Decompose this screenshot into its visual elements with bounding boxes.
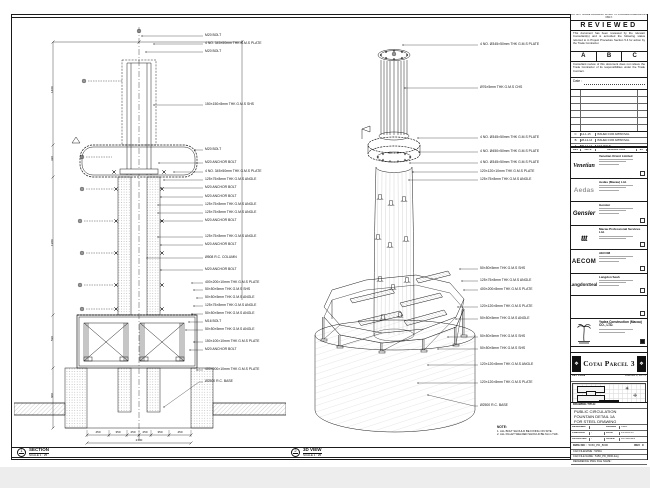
callout-label: M20 ANCHOR BOLT: [205, 243, 237, 246]
dimension-vertical: 320: [51, 156, 54, 161]
revision-header-cell: BY: [637, 149, 647, 152]
key-plan-star-2: ✛: [633, 393, 637, 399]
note-line: 2. ALL FILLET WELDED SHOULD BE 6mm THK.: [497, 433, 569, 436]
consultant-logo: Gensler: [571, 202, 597, 225]
callout-label: 50×50×5mm THK G.M.S ANGLE: [205, 296, 255, 299]
callout-label: 4 NO. 345×50mm THK G.M.S PLATE: [205, 42, 262, 45]
revision-header-cell: DATE: [581, 149, 596, 152]
note-lines: 1. ALL BOLT SHOULD BE FIXING ON SITE.2. …: [497, 430, 569, 437]
section-scale: SCALE 1 : 25: [29, 454, 49, 458]
title-block-panel: DO NOT SCALE DRAWING. WORK TO FIGURED DI…: [570, 14, 648, 459]
callout-label: 125×75×8mm THK G.M.S ANGLE: [480, 178, 531, 181]
stamp-date-row: Date :: [571, 77, 647, 86]
address-placeholder: [599, 238, 626, 239]
iso-marker: 2: [291, 448, 300, 457]
section-title-block: SECTION SCALE 1 : 25: [29, 448, 49, 458]
callout-label: 50×50×5mm THK G.M.S SHS: [480, 347, 525, 350]
cad-file-rows: CAD FILENAME : 5150ACAD FILE NAME : 5150…: [571, 450, 647, 465]
callout-label: 400×200×8mm THK G.M.S PLATE: [480, 288, 532, 291]
consultant-row: AECOMAECOM: [571, 250, 647, 274]
iso-title-block: 3D VIEW SCALE 1 : 25: [303, 448, 322, 458]
contractor-checkbox: [640, 339, 646, 345]
callout-label: 150×150×8mm THK G.M.S SHS: [205, 103, 254, 106]
key-plan-parcel: PARCEL 3, LOT 2: [625, 375, 646, 381]
dimension-value: 250: [142, 431, 147, 434]
revision-entries: C14-1-15ISSUED FOR APPROVALB28-12-14ISSU…: [571, 132, 647, 147]
callout-label: 125×75×8mm THK G.M.S ANGLE: [205, 203, 256, 206]
consultant-checkbox: [640, 171, 646, 177]
revision-empty-row: [571, 125, 647, 132]
callout-label: M20 ANCHOR BOLT: [205, 186, 237, 189]
consultant-logo: Aedas: [571, 179, 597, 201]
grade-cell: C: [622, 52, 647, 61]
consultant-logo: ttt: [571, 226, 597, 249]
footer-separator: [11, 447, 571, 448]
dimension-value: 250: [130, 431, 135, 434]
consultant-logo: LangdonSeah: [571, 274, 597, 295]
consultant-name: Venetian Orient Limited: [599, 155, 645, 159]
callout-label: Ø508 R.C. COLUMN: [205, 256, 237, 259]
consultant-row: tttMacau Professional Services Ltd.: [571, 226, 647, 250]
drawing-sheet: { "left_view": { "marker_no": "1", "titl…: [0, 0, 650, 488]
dimension-value: 450: [177, 431, 182, 434]
project-title-banner: ❖ Cotai Parcel 3 ❖: [571, 353, 647, 375]
consultant-checkbox: [640, 288, 646, 294]
callout-label: 125×75×8mm THK G.M.S ANGLE: [480, 279, 531, 282]
consultant-checkbox: [640, 242, 646, 248]
contractor-row: Yadea Construction (Macau) CO., LTD.: [571, 319, 647, 347]
consultant-row: [571, 296, 647, 319]
frame-top-outer: [11, 14, 648, 15]
consultant-logo: Venetian: [571, 153, 597, 178]
signature-cell: APPROVED: [571, 438, 590, 441]
stamp-paragraph-1: This document has been reviewed by the r…: [571, 31, 647, 51]
revision-empty-rows: [571, 90, 647, 132]
callout-label: 120×120×10mm THK G.M.S PLATE: [480, 170, 534, 173]
callout-label: M20 ANCHOR BOLT: [205, 219, 237, 222]
address-placeholder: [599, 258, 626, 259]
address-placeholder: [599, 190, 619, 191]
signature-cell: DESIGNED: [571, 426, 590, 429]
consultant-name: Langdon Seah: [599, 276, 645, 280]
project-title: Cotai Parcel 3: [582, 359, 636, 368]
dimension-total: 2100: [136, 439, 143, 442]
callout-label: 120×120×8mm THK G.M.S PLATE: [480, 305, 532, 308]
callout-label: 4 NO. Ø450×50mm THK G.M.S PLATE: [480, 150, 539, 153]
callout-label: M20 ANCHOR BOLT: [205, 268, 237, 271]
address-placeholder: [599, 164, 619, 165]
drawing-title-label: DRAWING TITLE:: [573, 403, 596, 408]
signature-cell: -: [590, 432, 605, 435]
callout-label: 4 NO. Ø345×50mm THK G.M.S PLATE: [480, 43, 539, 46]
key-plan-label: KEY PLAN: [572, 375, 585, 381]
signature-cell: DRAWN: [605, 426, 620, 429]
section-view: M20 BOLT4 NO. 345×50mm THK G.M.S PLATEM2…: [14, 17, 286, 447]
consultant-row: VenetianVenetian Orient Limited: [571, 153, 647, 179]
signature-cell: -: [590, 438, 605, 441]
callout-label: 50×50×5mm THK G.M.S ANGLE: [205, 312, 255, 315]
callout-label: 400×200×10mm THK G.M.S PLATE: [205, 281, 259, 284]
callout-label: 50×50×5mm THK G.M.S SHS: [480, 267, 525, 270]
callout-label: 50×50×5mm THK G.M.S ANGLE: [480, 317, 530, 320]
section-drawing: [14, 17, 286, 447]
general-notes: NOTE: 1. ALL BOLT SHOULD BE FIXING ON SI…: [497, 426, 569, 437]
callout-label: 4 NO. 345×50mm THK G.M.S PLATE: [205, 170, 262, 173]
desk-background: [0, 467, 650, 488]
callout-label: Ø2500 R.C. BASE: [205, 380, 233, 383]
signature-cell: CWD: [620, 426, 647, 429]
consultant-checkbox: [640, 218, 646, 224]
callout-label: 4 NO. Ø345×50mm THK G.M.S PLATE: [480, 136, 539, 139]
dimension-value: 350: [157, 431, 162, 434]
address-placeholder: [599, 187, 626, 188]
contractor-name: Yadea Construction (Macau) CO., LTD.: [599, 321, 645, 329]
grade-cell: A: [571, 52, 597, 61]
address-placeholder: [599, 210, 626, 211]
stamp-grades: ABC: [571, 51, 647, 62]
callout-label: 50×50×5mm THK G.M.S ANGLE: [205, 328, 255, 331]
callout-label: 125×75×8mm THK G.M.S ANGLE: [205, 178, 256, 181]
address-placeholder: [599, 282, 626, 283]
consultant-name: Macau Professional Services Ltd.: [599, 228, 645, 235]
dimension-vertical: 1460: [51, 86, 54, 93]
address-placeholder: [599, 280, 633, 281]
dimension-vertical: 1380: [51, 239, 54, 246]
callout-label: 4 NO. Ø345×50mm THK G.M.S PLATE: [480, 161, 539, 164]
callout-label: 120×120×8mm THK G.M.S ANGLE: [480, 363, 533, 366]
address-placeholder: [599, 213, 619, 214]
callout-label: 50×50×5mm THK G.M.S SHS: [205, 288, 250, 291]
address-placeholder: [599, 159, 633, 160]
banner-ornament-left: ❖: [572, 356, 581, 372]
callout-label: M20 ANCHOR BOLT: [205, 348, 237, 351]
frame-left: [11, 14, 12, 459]
callout-label: M20 ANCHOR BOLT: [205, 161, 237, 164]
stamp-date-line: [584, 80, 645, 85]
stamp-date-label: Date :: [573, 80, 582, 83]
callout-label: M20 BOLT: [205, 34, 221, 37]
callout-label: M20 BOLT: [205, 50, 221, 53]
revision-empty-row: [571, 104, 647, 111]
consultant-logo: AECOM: [571, 250, 597, 273]
callout-label: M20 ANCHOR BOLT: [205, 195, 237, 198]
callout-label: 120×120×8mm THK G.M.S PLATE: [480, 381, 532, 384]
revision-empty-row: [571, 111, 647, 118]
address-placeholder: [599, 285, 619, 286]
consultant-name: AECOM: [599, 252, 645, 256]
consultant-list: VenetianVenetian Orient LimitedAedasAeda…: [571, 153, 647, 319]
rev-value: C: [640, 444, 647, 447]
drawing-title-line: FOR STEEL DRAWING: [574, 419, 647, 424]
signature-cell: DATE: [605, 432, 620, 435]
callout-label: 125×75×8mm THK G.M.S ANGLE: [205, 304, 256, 307]
callout-label: M16 BOLT: [205, 320, 221, 323]
consultant-name: Gensler: [599, 204, 645, 208]
revision-empty-row: [571, 97, 647, 104]
consultant-name: Aedas (Macau) Ltd.: [599, 181, 645, 185]
callout-label: M20 BOLT: [205, 148, 221, 151]
signature-cell: SCALE: [605, 438, 620, 441]
signature-cell: AS SHOWN: [620, 438, 647, 441]
callout-label: 150×100×10mm THK G.M.S PLATE: [205, 340, 259, 343]
key-plan-map: ✳ ✛: [572, 383, 646, 403]
banner-ornament-right: ❖: [637, 356, 646, 372]
dwg-no-value: 5150_PD_8000: [587, 444, 635, 447]
grade-cell: B: [597, 52, 623, 61]
address-placeholder: [599, 185, 633, 186]
contractor-logo: [571, 319, 597, 346]
consultant-checkbox: [640, 266, 646, 272]
dimension-value: 450: [95, 431, 100, 434]
section-marker: 1: [17, 448, 26, 457]
stamp-title: REVIEWED: [571, 21, 647, 31]
callout-label: 125×75×8mm THK G.M.S ANGLE: [205, 211, 256, 214]
address-placeholder: [599, 236, 633, 237]
stamp-top-strip: DO NOT SCALE DRAWING. WORK TO FIGURED DI…: [571, 14, 647, 21]
address-placeholder: [599, 208, 633, 209]
palm-tree-icon: [576, 322, 592, 344]
address-placeholder: [599, 256, 633, 257]
dimension-vertical: 600: [51, 393, 54, 398]
frame-bottom-outer: [11, 459, 648, 460]
revision-empty-row: [571, 90, 647, 97]
drawing-title-lines: PUBLIC CIRCULATIONFOUNTAIN DETAIL 1AFOR …: [571, 409, 647, 425]
iso-view: 4 NO. Ø345×50mm THK G.M.S PLATEØ76×5mm T…: [288, 17, 570, 447]
dwg-no-label: DWG NO :: [571, 444, 587, 447]
key-plan-star-1: ✳: [625, 386, 629, 392]
iso-scale: SCALE 1 : 25: [303, 454, 322, 458]
revision-header-cell: DESCRIPTION: [596, 149, 637, 152]
callout-label: Ø76×5mm THK G.M.S CHS: [480, 86, 522, 89]
signature-grid: DESIGNEDDRAWNCWDCHECKED-DATE14-JAN-15APP…: [571, 425, 647, 443]
callout-label: 125×75×8mm THK G.M.S ANGLE: [205, 235, 256, 238]
revision-empty-row: [571, 118, 647, 125]
consultant-checkbox: [640, 311, 646, 317]
consultant-row: GenslerGensler: [571, 202, 647, 226]
dimension-value: 350: [115, 431, 120, 434]
address-placeholder: [599, 261, 619, 262]
callout-label: 400×200×10mm THK G.M.S PLATE: [205, 368, 259, 371]
callout-label: 50×50×5mm THK G.M.S SHS: [480, 335, 525, 338]
drawing-title-block: DRAWING TITLE: PUBLIC CIRCULATIONFOUNTAI…: [571, 403, 647, 465]
signature-cell: CHECKED: [571, 432, 590, 435]
callout-label: Ø2500 R.C. BASE: [480, 404, 508, 407]
consultant-row: LangdonSeahLangdon Seah: [571, 274, 647, 296]
consultant-logo: [571, 296, 597, 318]
key-plan-highlight-bar: [599, 400, 619, 403]
consultant-row: AedasAedas (Macau) Ltd.: [571, 179, 647, 202]
dimension-vertical: 530: [51, 336, 54, 341]
signature-cell: 14-JAN-15: [620, 432, 647, 435]
revision-header-cell: REV: [571, 149, 581, 152]
review-stamp: DO NOT SCALE DRAWING. WORK TO FIGURED DI…: [571, 14, 647, 90]
frame-bottom-inner: [11, 457, 648, 458]
address-placeholder: [599, 161, 626, 162]
key-plan: KEY PLAN PARCEL 3, LOT 2 ✳ ✛: [571, 375, 647, 403]
stamp-paragraph-2: Consultant review of this document does …: [571, 62, 647, 77]
cad-file-row: REFERENCE DWG FILE NAME :: [571, 460, 647, 465]
